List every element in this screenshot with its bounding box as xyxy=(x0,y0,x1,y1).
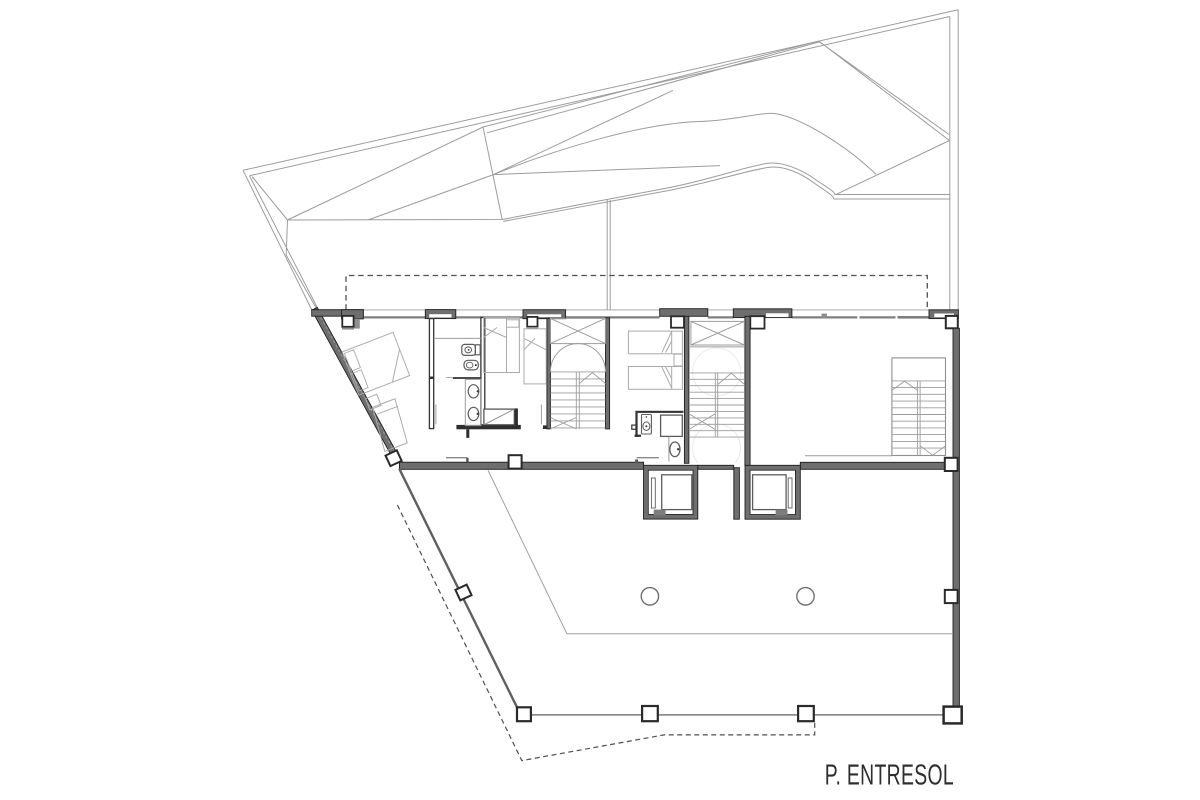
svg-text:P. ENTRESOL: P. ENTRESOL xyxy=(825,760,954,792)
